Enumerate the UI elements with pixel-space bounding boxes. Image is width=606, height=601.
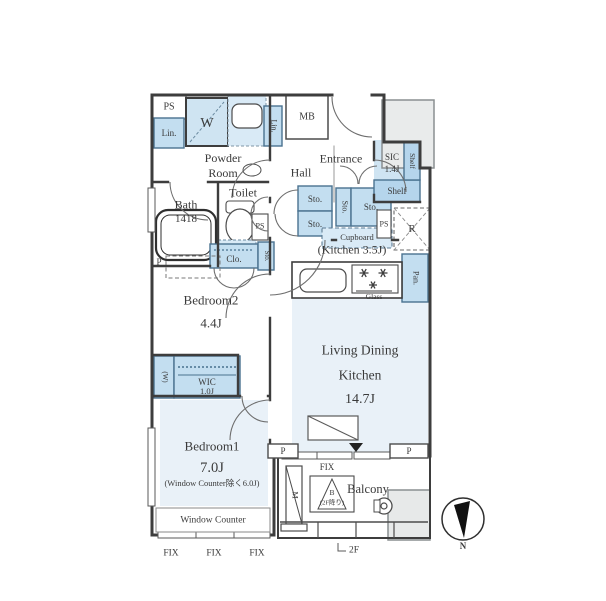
- balcony-partition-label: M: [290, 491, 299, 498]
- bedroom2-size-label: 4.4J: [200, 317, 221, 332]
- sic-size-label: 1.4J: [385, 164, 400, 174]
- kitchen-label: (Kitchen 3.5J): [318, 243, 387, 256]
- balcony-label: Balcony: [347, 482, 389, 496]
- hall-storage-bifold-arcs: [274, 190, 298, 236]
- wic-size-label: 1.0J: [200, 387, 214, 397]
- bedroom1-note-label: (Window Counter除く6.0J): [164, 479, 259, 489]
- powder-room-line1: Powder: [205, 151, 242, 166]
- ps-toilet-label: PS: [256, 223, 265, 232]
- hatch-note-label: (2F降り): [320, 499, 344, 506]
- ldk-size-label: 14.7J: [345, 392, 375, 408]
- bath-window: [148, 188, 155, 232]
- ldk-label-line1: Living Dining: [322, 342, 399, 357]
- compass-north-label: N: [460, 541, 467, 551]
- closet-label: Clo.: [226, 254, 241, 264]
- pillar-left-label: P: [280, 446, 285, 456]
- bedroom1-label: Bedroom1: [185, 440, 240, 455]
- washer-label: W: [200, 116, 213, 132]
- fix-ldk-label: FIX: [320, 462, 335, 472]
- hall-label: Hall: [291, 166, 312, 179]
- bedroom2-label: Bedroom2: [184, 294, 239, 309]
- bedroom1-left-window: [148, 428, 155, 506]
- storage-entrance-side-label: Sto.: [340, 201, 349, 214]
- shelf-side-label: Shelf: [408, 153, 416, 169]
- hatch-label: B: [329, 489, 334, 497]
- wic-washer-label: (W): [160, 371, 168, 382]
- powder-room-label: Powder Room: [205, 151, 242, 181]
- toilet-bowl: [226, 209, 254, 243]
- shelf-bottom-label: Shelf: [388, 186, 407, 196]
- linen-top-label: Lin.: [162, 128, 177, 138]
- meter-box-label: MB: [299, 111, 315, 122]
- balcony-partition-base: [281, 524, 307, 531]
- entrance-label: Entrance: [320, 152, 363, 165]
- floor-plan: PS Lin. W Lin. MB Powder Room Hall Entra…: [0, 0, 606, 601]
- storage-hall-upper-label: Sto.: [308, 194, 322, 204]
- bedroom1-size-label: 7.0J: [200, 460, 224, 476]
- floor-note-leader: [338, 543, 346, 551]
- fix-bottom-label-1: FIX: [163, 549, 178, 560]
- storage-closet-side-label: Sto.: [262, 250, 270, 261]
- ps-kitchen-label: PS: [380, 221, 389, 230]
- storage-hall-lower-label: Sto.: [308, 219, 322, 229]
- pillar-bath-label: P: [156, 257, 161, 267]
- stove-glass-label: Glass: [366, 293, 383, 301]
- powder-room-line2: Room: [205, 166, 242, 181]
- pillar-right-label: P: [406, 446, 411, 456]
- refrigerator-label: R: [408, 223, 415, 235]
- sic-label: SIC: [385, 152, 399, 162]
- ldk-fix-window: [354, 452, 390, 459]
- window-counter-label: Window Counter: [180, 516, 245, 527]
- stove-box: [352, 265, 398, 293]
- linen-side-label: Lin.: [269, 119, 278, 132]
- ps-top-label: PS: [163, 101, 174, 112]
- storage-entrance-label: Sto.: [364, 202, 378, 212]
- bath-label: Bath: [175, 198, 198, 211]
- floor-plan-drawing: [0, 0, 606, 601]
- entrance-door-arc: [332, 97, 372, 137]
- pantry-label: Pan.: [411, 271, 420, 285]
- balcony-faucet-body: [374, 500, 380, 512]
- vanity-sink: [232, 104, 262, 128]
- toilet-label: Toilet: [229, 186, 257, 199]
- bath-size-label: 1418: [175, 213, 197, 225]
- fix-bottom-label-2: FIX: [206, 549, 221, 560]
- floor-note-label: 2F: [349, 546, 359, 557]
- ldk-label-line2: Kitchen: [339, 367, 382, 382]
- entrance-storage-double-arcs: [340, 166, 377, 184]
- toilet-sink: [243, 164, 261, 176]
- fix-bottom-label-3: FIX: [249, 549, 264, 560]
